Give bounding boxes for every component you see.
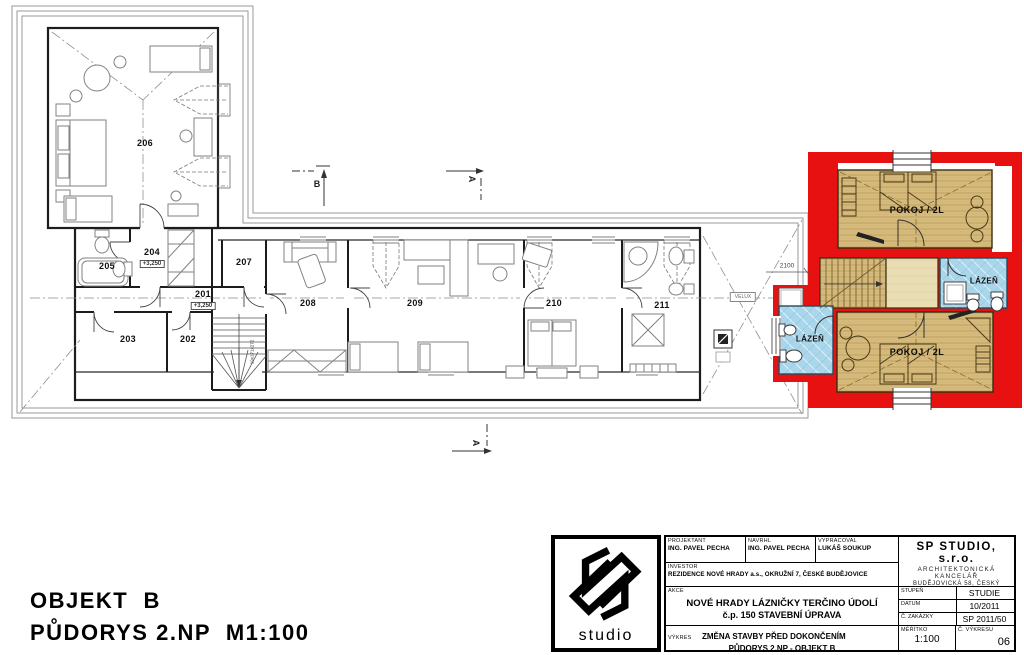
stupen-label: STUPEŇ xyxy=(901,588,923,594)
navrhl-label: NAVRHL xyxy=(746,537,815,544)
annex-room-label-pokoj-bottom: POKOJ / 2L xyxy=(890,347,945,357)
room-label-208: 208 xyxy=(300,298,316,308)
room-label-210: 210 xyxy=(546,298,562,308)
room-label-209: 209 xyxy=(407,298,423,308)
title-block: PROJEKTANT ING. PAVEL PECHA NAVRHL ING. … xyxy=(664,535,1016,652)
annex-room-label-lazen-right: LÁZEŇ xyxy=(970,277,998,286)
sp-monogram-icon xyxy=(561,541,651,625)
annex-room-label-pokoj-top: POKOJ / 2L xyxy=(890,205,945,215)
room-label-201: 201 xyxy=(195,289,211,299)
studio-logo: studio xyxy=(551,535,661,652)
investor-label: INVESTOR xyxy=(666,563,898,570)
annex-room-label-lazen-left: LÁZEŇ xyxy=(796,335,824,344)
akce-line1: NOVÉ HRADY LÁZNIČKY TERČINO ÚDOLÍ xyxy=(666,594,898,609)
cell-navrhl: NAVRHL ING. PAVEL PECHA xyxy=(746,537,816,563)
cislo-vykresu-value: 06 xyxy=(998,636,1010,648)
cell-zakazka: Č. ZAKÁZKY SP 2011/50 xyxy=(899,613,1014,626)
vypracoval-label: VYPRACOVAL xyxy=(816,537,898,544)
cell-stupen: STUPEŇ STUDIE xyxy=(899,587,1014,600)
room-label-202: 202 xyxy=(180,334,196,344)
cell-akce: AKCE NOVÉ HRADY LÁZNIČKY TERČINO ÚDOLÍ č… xyxy=(666,587,899,626)
room-label-204: 204 xyxy=(144,247,160,257)
zakazka-label: Č. ZAKÁZKY xyxy=(901,614,933,620)
drawing-object-title: OBJEKT B xyxy=(30,588,161,614)
cell-projektant: PROJEKTANT ING. PAVEL PECHA xyxy=(666,537,746,563)
dimension-2100: 2100 xyxy=(780,263,794,270)
cislo-vykresu-label: Č. VÝKRESU xyxy=(956,626,1014,633)
room-label-207: 207 xyxy=(236,257,252,267)
vykres-line2: PŮDORYS 2.NP - OBJEKT B xyxy=(666,644,898,650)
projektant-label: PROJEKTANT xyxy=(666,537,745,544)
room-label-205: 205 xyxy=(99,261,115,271)
investor-value: REZIDENCE NOVÉ HRADY a.s., OKRUŽNÍ 7, ČE… xyxy=(666,570,898,578)
drawing-plan-title: PŮDORYS 2.NP M1:100 xyxy=(30,620,309,646)
company-line2: BUDĚJOVICKÁ 58, ČESKÝ KRUMLOV xyxy=(899,580,1014,587)
stair-dimension-label: 19x171x272 xyxy=(250,340,255,365)
vykres-label: VÝKRES xyxy=(666,634,692,641)
level-label-204: +3,250 xyxy=(140,260,165,268)
section-marker-a-top: A xyxy=(467,176,477,183)
zakazka-value: SP 2011/50 xyxy=(956,613,1012,625)
studio-logo-text: studio xyxy=(555,627,657,645)
section-marker-b: B xyxy=(314,179,321,189)
room-label-206: 206 xyxy=(137,138,153,148)
cell-cislo-vykresu: Č. VÝKRESU 06 xyxy=(956,626,1014,650)
cell-vypracoval: VYPRACOVAL LUKÁŠ SOUKUP xyxy=(816,537,899,563)
vypracoval-value: LUKÁŠ SOUKUP xyxy=(816,544,898,552)
datum-value: 10/2011 xyxy=(956,600,1012,612)
room-label-211: 211 xyxy=(654,300,669,310)
velux-label: VELUX xyxy=(730,292,756,302)
stupen-value: STUDIE xyxy=(956,587,1012,599)
meritko-value: 1:100 xyxy=(899,634,955,645)
projektant-value: ING. PAVEL PECHA xyxy=(666,544,745,552)
drawing-sheet: 206 205 204 +3,250 207 201 +3,250 203 20… xyxy=(0,0,1024,655)
cell-datum: DATUM 10/2011 xyxy=(899,600,1014,613)
level-label-201: +3,250 xyxy=(191,302,216,310)
room-label-203: 203 xyxy=(120,334,136,344)
akce-line2: č.p. 150 STAVEBNÍ ÚPRAVA xyxy=(666,609,898,620)
company-line1: ARCHITEKTONICKÁ KANCELÁŘ xyxy=(899,565,1014,580)
section-marker-a-bottom: A xyxy=(471,440,481,447)
cell-meritko: MĚŘÍTKO 1:100 xyxy=(899,626,956,650)
datum-label: DATUM xyxy=(901,601,920,607)
meritko-label: MĚŘÍTKO xyxy=(899,626,955,633)
cell-investor: INVESTOR REZIDENCE NOVÉ HRADY a.s., OKRU… xyxy=(666,563,899,587)
velux-roof-window-icon xyxy=(714,330,732,362)
cell-vykres: VÝKRES ZMĚNA STAVBY PŘED DOKONČENÍM PŮDO… xyxy=(666,626,899,650)
navrhl-value: ING. PAVEL PECHA xyxy=(746,544,815,552)
akce-label: AKCE xyxy=(666,587,898,594)
vykres-line1: ZMĚNA STAVBY PŘED DOKONČENÍM xyxy=(696,630,846,641)
cell-company: SP STUDIO, s.r.o. ARCHITEKTONICKÁ KANCEL… xyxy=(899,537,1014,587)
company-name: SP STUDIO, s.r.o. xyxy=(899,537,1014,565)
